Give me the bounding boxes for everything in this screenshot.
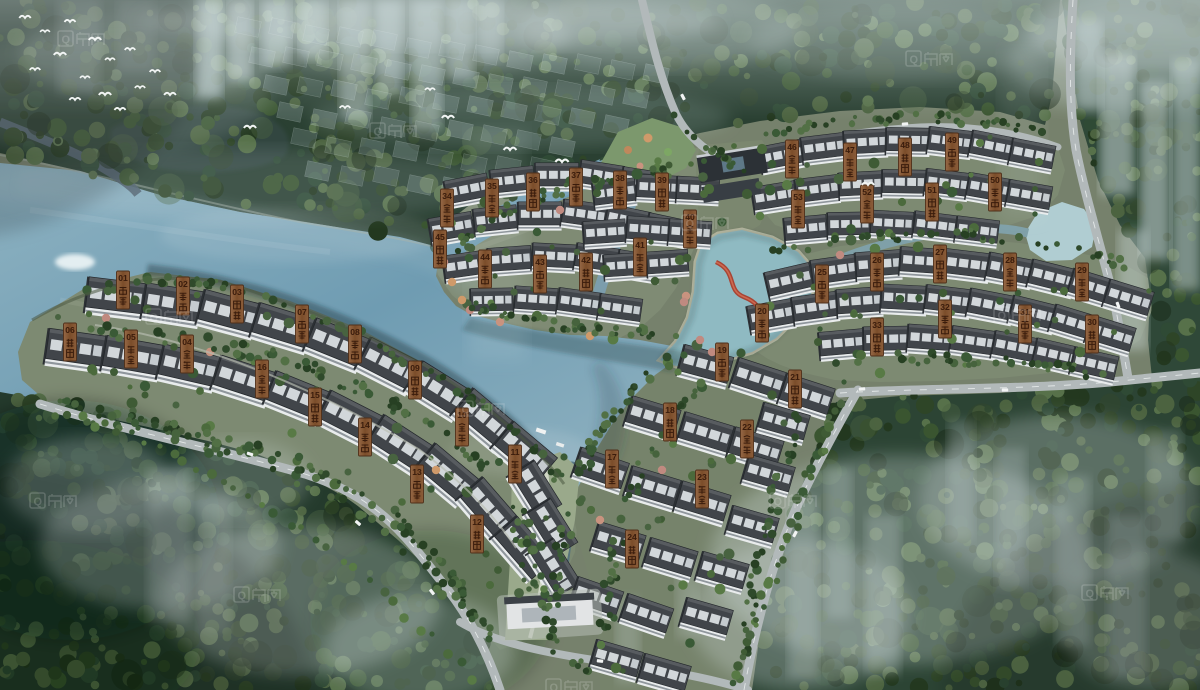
svg-text:04: 04: [182, 337, 192, 347]
svg-text:50: 50: [990, 175, 1000, 185]
svg-text:Q: Q: [62, 34, 71, 46]
svg-text:16: 16: [257, 362, 267, 372]
svg-text:Q: Q: [774, 496, 783, 508]
svg-text:08: 08: [350, 327, 360, 337]
svg-text:24: 24: [627, 532, 637, 542]
svg-text:18: 18: [665, 405, 675, 415]
svg-text:47: 47: [845, 145, 855, 155]
svg-text:49: 49: [947, 135, 957, 145]
svg-text:02: 02: [178, 279, 188, 289]
svg-text:53: 53: [793, 192, 803, 202]
svg-text:Q: Q: [998, 310, 1007, 322]
svg-text:34: 34: [442, 191, 452, 201]
svg-text:15: 15: [310, 390, 320, 400]
svg-text:30: 30: [1087, 317, 1097, 327]
svg-text:37: 37: [571, 170, 581, 180]
svg-text:09: 09: [410, 363, 420, 373]
svg-text:41: 41: [635, 240, 645, 250]
svg-text:42: 42: [581, 255, 591, 265]
svg-text:36: 36: [528, 175, 538, 185]
svg-text:25: 25: [817, 267, 827, 277]
svg-text:07: 07: [297, 307, 307, 317]
svg-text:21: 21: [790, 372, 800, 382]
svg-text:Q: Q: [150, 312, 159, 324]
svg-text:27: 27: [935, 247, 945, 257]
svg-text:13: 13: [412, 467, 422, 477]
svg-text:51: 51: [927, 185, 937, 195]
svg-text:33: 33: [872, 320, 882, 330]
svg-text:01: 01: [118, 273, 128, 283]
svg-text:14: 14: [360, 420, 370, 430]
svg-text:17: 17: [607, 452, 617, 462]
svg-text:38: 38: [615, 173, 625, 183]
svg-text:Q: Q: [238, 590, 247, 602]
svg-text:29: 29: [1077, 265, 1087, 275]
svg-text:22: 22: [742, 422, 752, 432]
svg-text:52: 52: [862, 187, 872, 197]
svg-text:19: 19: [717, 345, 727, 355]
svg-text:Q: Q: [462, 404, 471, 416]
svg-text:06: 06: [65, 325, 75, 335]
svg-text:23: 23: [697, 472, 707, 482]
svg-text:11: 11: [510, 447, 519, 457]
svg-text:Q: Q: [1086, 588, 1095, 600]
svg-text:32: 32: [940, 302, 950, 312]
svg-text:39: 39: [657, 175, 667, 185]
svg-text:12: 12: [472, 517, 482, 527]
svg-text:26: 26: [872, 255, 882, 265]
svg-text:05: 05: [126, 332, 136, 342]
svg-text:44: 44: [480, 252, 490, 262]
svg-text:35: 35: [487, 181, 497, 191]
svg-text:Q: Q: [550, 682, 559, 690]
svg-text:Q: Q: [686, 218, 695, 230]
svg-text:28: 28: [1005, 255, 1015, 265]
svg-text:Q: Q: [910, 54, 919, 66]
svg-text:Q: Q: [34, 496, 43, 508]
svg-text:43: 43: [535, 257, 545, 267]
svg-text:46: 46: [787, 142, 797, 152]
svg-text:48: 48: [900, 140, 910, 150]
svg-text:Q: Q: [374, 126, 383, 138]
svg-text:45: 45: [435, 232, 445, 242]
svg-text:03: 03: [232, 287, 242, 297]
svg-text:20: 20: [757, 306, 767, 316]
